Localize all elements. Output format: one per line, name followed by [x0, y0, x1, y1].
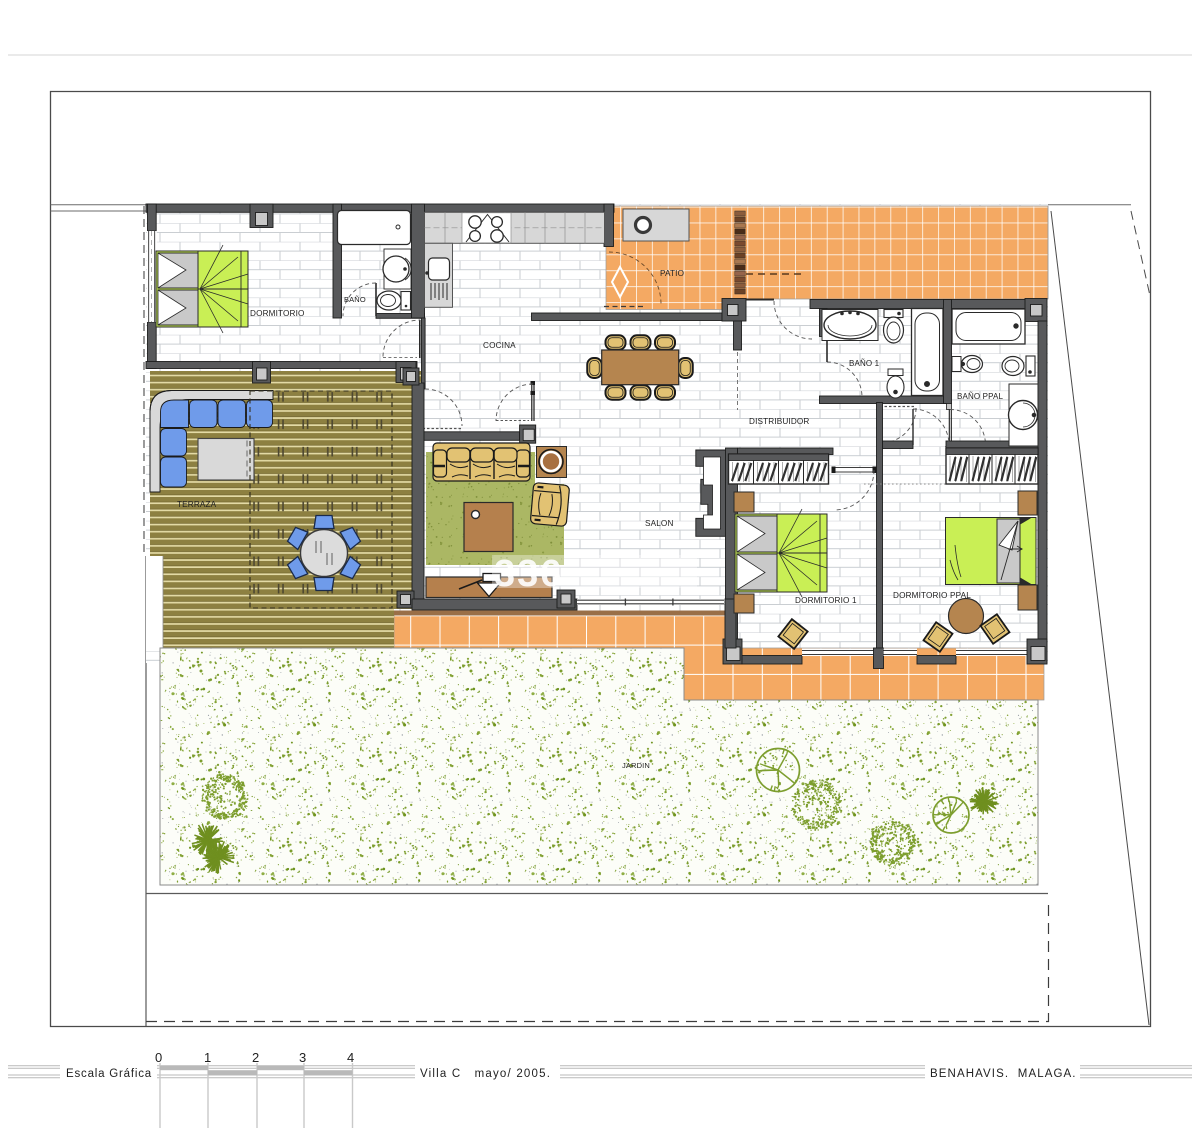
- svg-text:COCINA: COCINA: [483, 341, 516, 350]
- svg-text:DORMITORIO PPAL: DORMITORIO PPAL: [893, 591, 971, 600]
- svg-text:Escala Gráfica: Escala Gráfica: [66, 1068, 152, 1080]
- svg-text:JARDIN: JARDIN: [622, 761, 650, 770]
- svg-text:BAÑO PPAL: BAÑO PPAL: [957, 392, 1004, 401]
- svg-text:Villa C mayo/ 2005.: Villa C mayo/ 2005.: [420, 1068, 551, 1080]
- svg-text:336: 336: [494, 553, 563, 595]
- svg-text:4: 4: [347, 1050, 354, 1065]
- svg-text:BAÑO 1: BAÑO 1: [849, 359, 880, 368]
- svg-text:DORMITORIO 1: DORMITORIO 1: [795, 596, 857, 605]
- svg-text:DISTRIBUIDOR: DISTRIBUIDOR: [749, 417, 809, 426]
- svg-text:1: 1: [204, 1050, 211, 1065]
- svg-text:DORMITORIO: DORMITORIO: [250, 309, 305, 318]
- svg-text:SALON: SALON: [645, 519, 674, 528]
- svg-text:2: 2: [252, 1050, 259, 1065]
- svg-text:3: 3: [299, 1050, 306, 1065]
- svg-text:BAÑO: BAÑO: [344, 295, 366, 304]
- svg-text:PATIO: PATIO: [660, 269, 684, 278]
- svg-text:BENAHAVIS. MALAGA.: BENAHAVIS. MALAGA.: [930, 1068, 1077, 1080]
- svg-text:0: 0: [155, 1050, 162, 1065]
- svg-text:TERRAZA: TERRAZA: [177, 500, 217, 509]
